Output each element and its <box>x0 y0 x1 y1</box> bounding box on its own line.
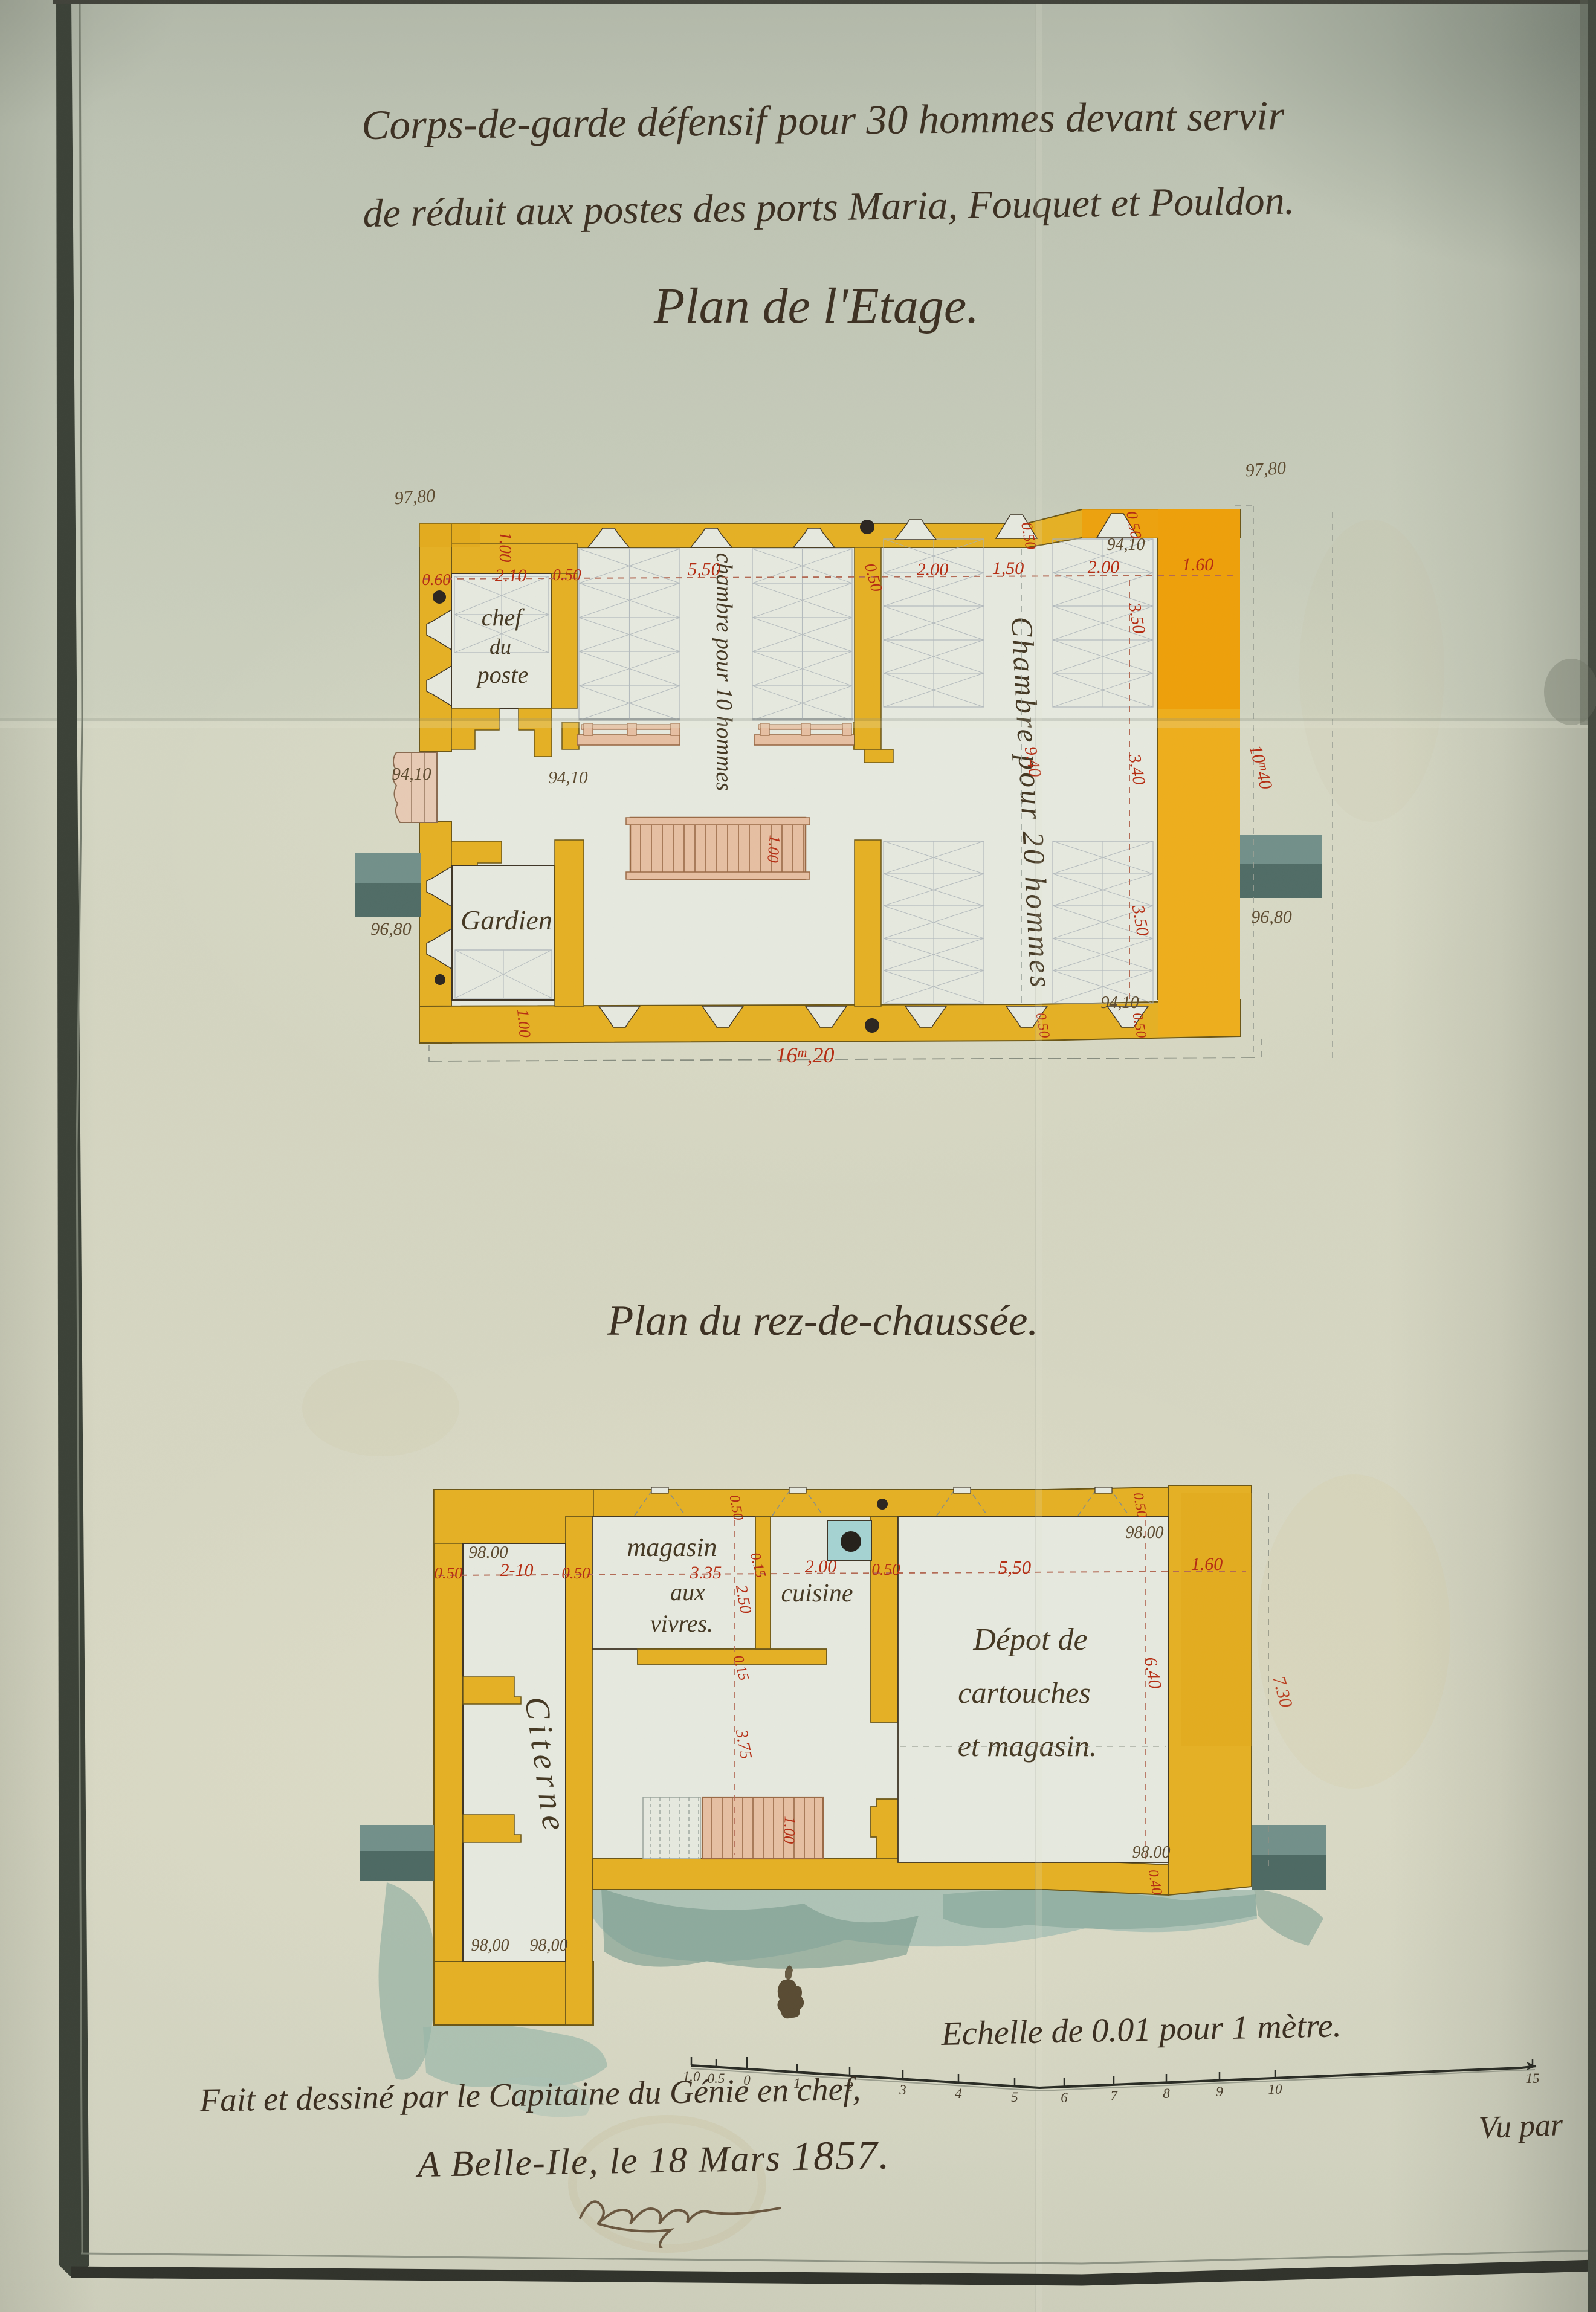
svg-text:5: 5 <box>1011 2090 1018 2105</box>
svg-text:8: 8 <box>1163 2086 1170 2101</box>
svg-text:10: 10 <box>1268 2082 1283 2097</box>
svg-text:6: 6 <box>1061 2090 1068 2105</box>
svg-text:4: 4 <box>955 2086 962 2101</box>
svg-text:7: 7 <box>1110 2088 1118 2104</box>
svg-text:15: 15 <box>1526 2071 1540 2086</box>
svg-text:3: 3 <box>899 2082 906 2097</box>
svg-text:9: 9 <box>1216 2084 1223 2099</box>
